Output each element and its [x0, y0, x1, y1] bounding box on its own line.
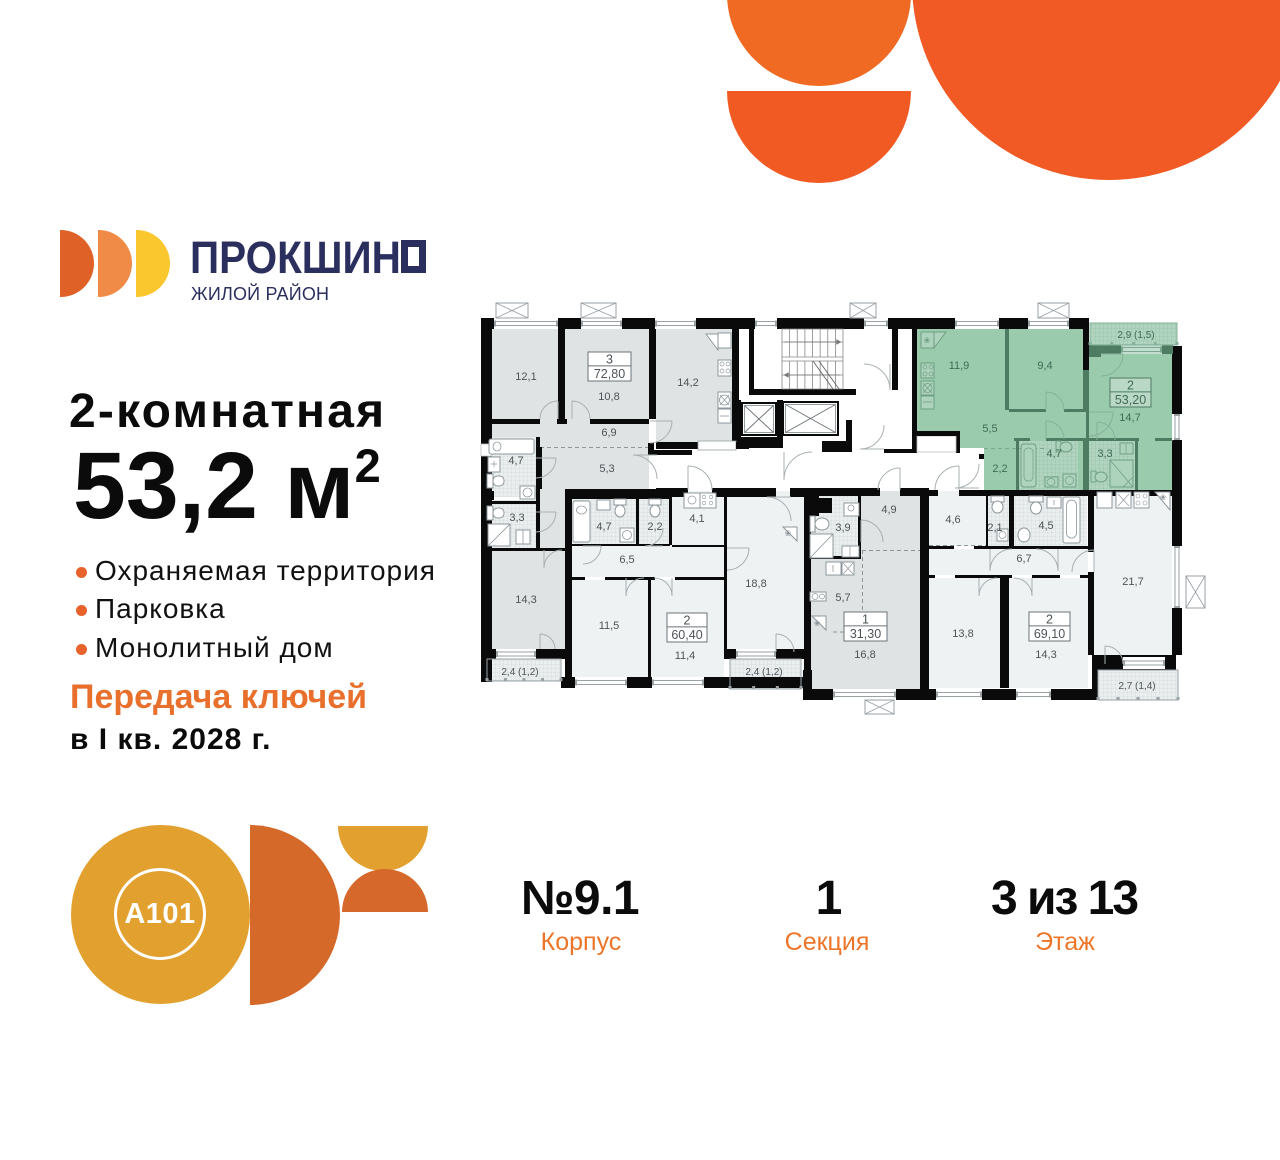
- svg-text:4,7: 4,7: [508, 455, 523, 467]
- svg-text:31,30: 31,30: [850, 627, 881, 641]
- svg-text:4,6: 4,6: [945, 514, 960, 526]
- svg-text:18,8: 18,8: [745, 578, 766, 590]
- svg-text:21,7: 21,7: [1122, 576, 1143, 588]
- svg-text:3,3: 3,3: [509, 512, 524, 524]
- svg-text:9,4: 9,4: [1037, 360, 1052, 372]
- svg-text:11,5: 11,5: [599, 620, 620, 632]
- svg-text:2,9 (1,5): 2,9 (1,5): [1117, 330, 1154, 341]
- svg-text:4,5: 4,5: [1038, 520, 1053, 532]
- svg-text:13,8: 13,8: [952, 628, 973, 640]
- svg-text:2,1: 2,1: [987, 522, 1002, 534]
- svg-text:2,4 (1,2): 2,4 (1,2): [745, 667, 782, 678]
- svg-text:69,10: 69,10: [1034, 627, 1065, 641]
- svg-text:2,2: 2,2: [992, 463, 1007, 475]
- svg-text:60,40: 60,40: [671, 628, 702, 642]
- svg-text:10,8: 10,8: [598, 391, 619, 403]
- svg-text:14,2: 14,2: [677, 377, 698, 389]
- svg-text:11,4: 11,4: [675, 650, 696, 662]
- svg-text:4,9: 4,9: [881, 504, 896, 516]
- svg-text:4,7: 4,7: [1046, 448, 1061, 460]
- svg-text:❀: ❀: [814, 619, 821, 628]
- svg-text:2,4 (1,2): 2,4 (1,2): [501, 667, 538, 678]
- svg-text:❀: ❀: [1160, 493, 1167, 502]
- svg-text:1: 1: [862, 613, 869, 627]
- svg-text:2,2: 2,2: [647, 521, 662, 533]
- svg-text:6,7: 6,7: [1016, 553, 1031, 565]
- svg-text:4,1: 4,1: [689, 513, 704, 525]
- svg-text:14,7: 14,7: [1119, 412, 1140, 424]
- svg-text:12,1: 12,1: [515, 371, 536, 383]
- svg-text:2: 2: [684, 614, 691, 628]
- svg-text:5,5: 5,5: [982, 423, 997, 435]
- svg-text:11,9: 11,9: [949, 360, 970, 372]
- svg-text:72,80: 72,80: [594, 367, 625, 381]
- svg-text:5,7: 5,7: [835, 592, 850, 604]
- svg-text:2: 2: [1046, 613, 1053, 627]
- svg-text:5,3: 5,3: [599, 463, 614, 475]
- svg-text:2,7 (1,4): 2,7 (1,4): [1118, 681, 1155, 692]
- svg-text:2: 2: [1127, 379, 1134, 393]
- svg-text:16,8: 16,8: [854, 649, 875, 661]
- svg-text:3,9: 3,9: [835, 522, 850, 534]
- svg-text:53,20: 53,20: [1115, 393, 1146, 407]
- svg-text:3,3: 3,3: [1097, 448, 1112, 460]
- svg-text:14,3: 14,3: [515, 594, 536, 606]
- svg-text:4,7: 4,7: [596, 521, 611, 533]
- svg-text:❀: ❀: [924, 336, 931, 345]
- svg-text:6,9: 6,9: [601, 427, 616, 439]
- svg-text:6,5: 6,5: [619, 554, 634, 566]
- svg-text:❀: ❀: [785, 529, 792, 538]
- svg-text:3: 3: [606, 353, 613, 367]
- svg-text:14,3: 14,3: [1035, 649, 1056, 661]
